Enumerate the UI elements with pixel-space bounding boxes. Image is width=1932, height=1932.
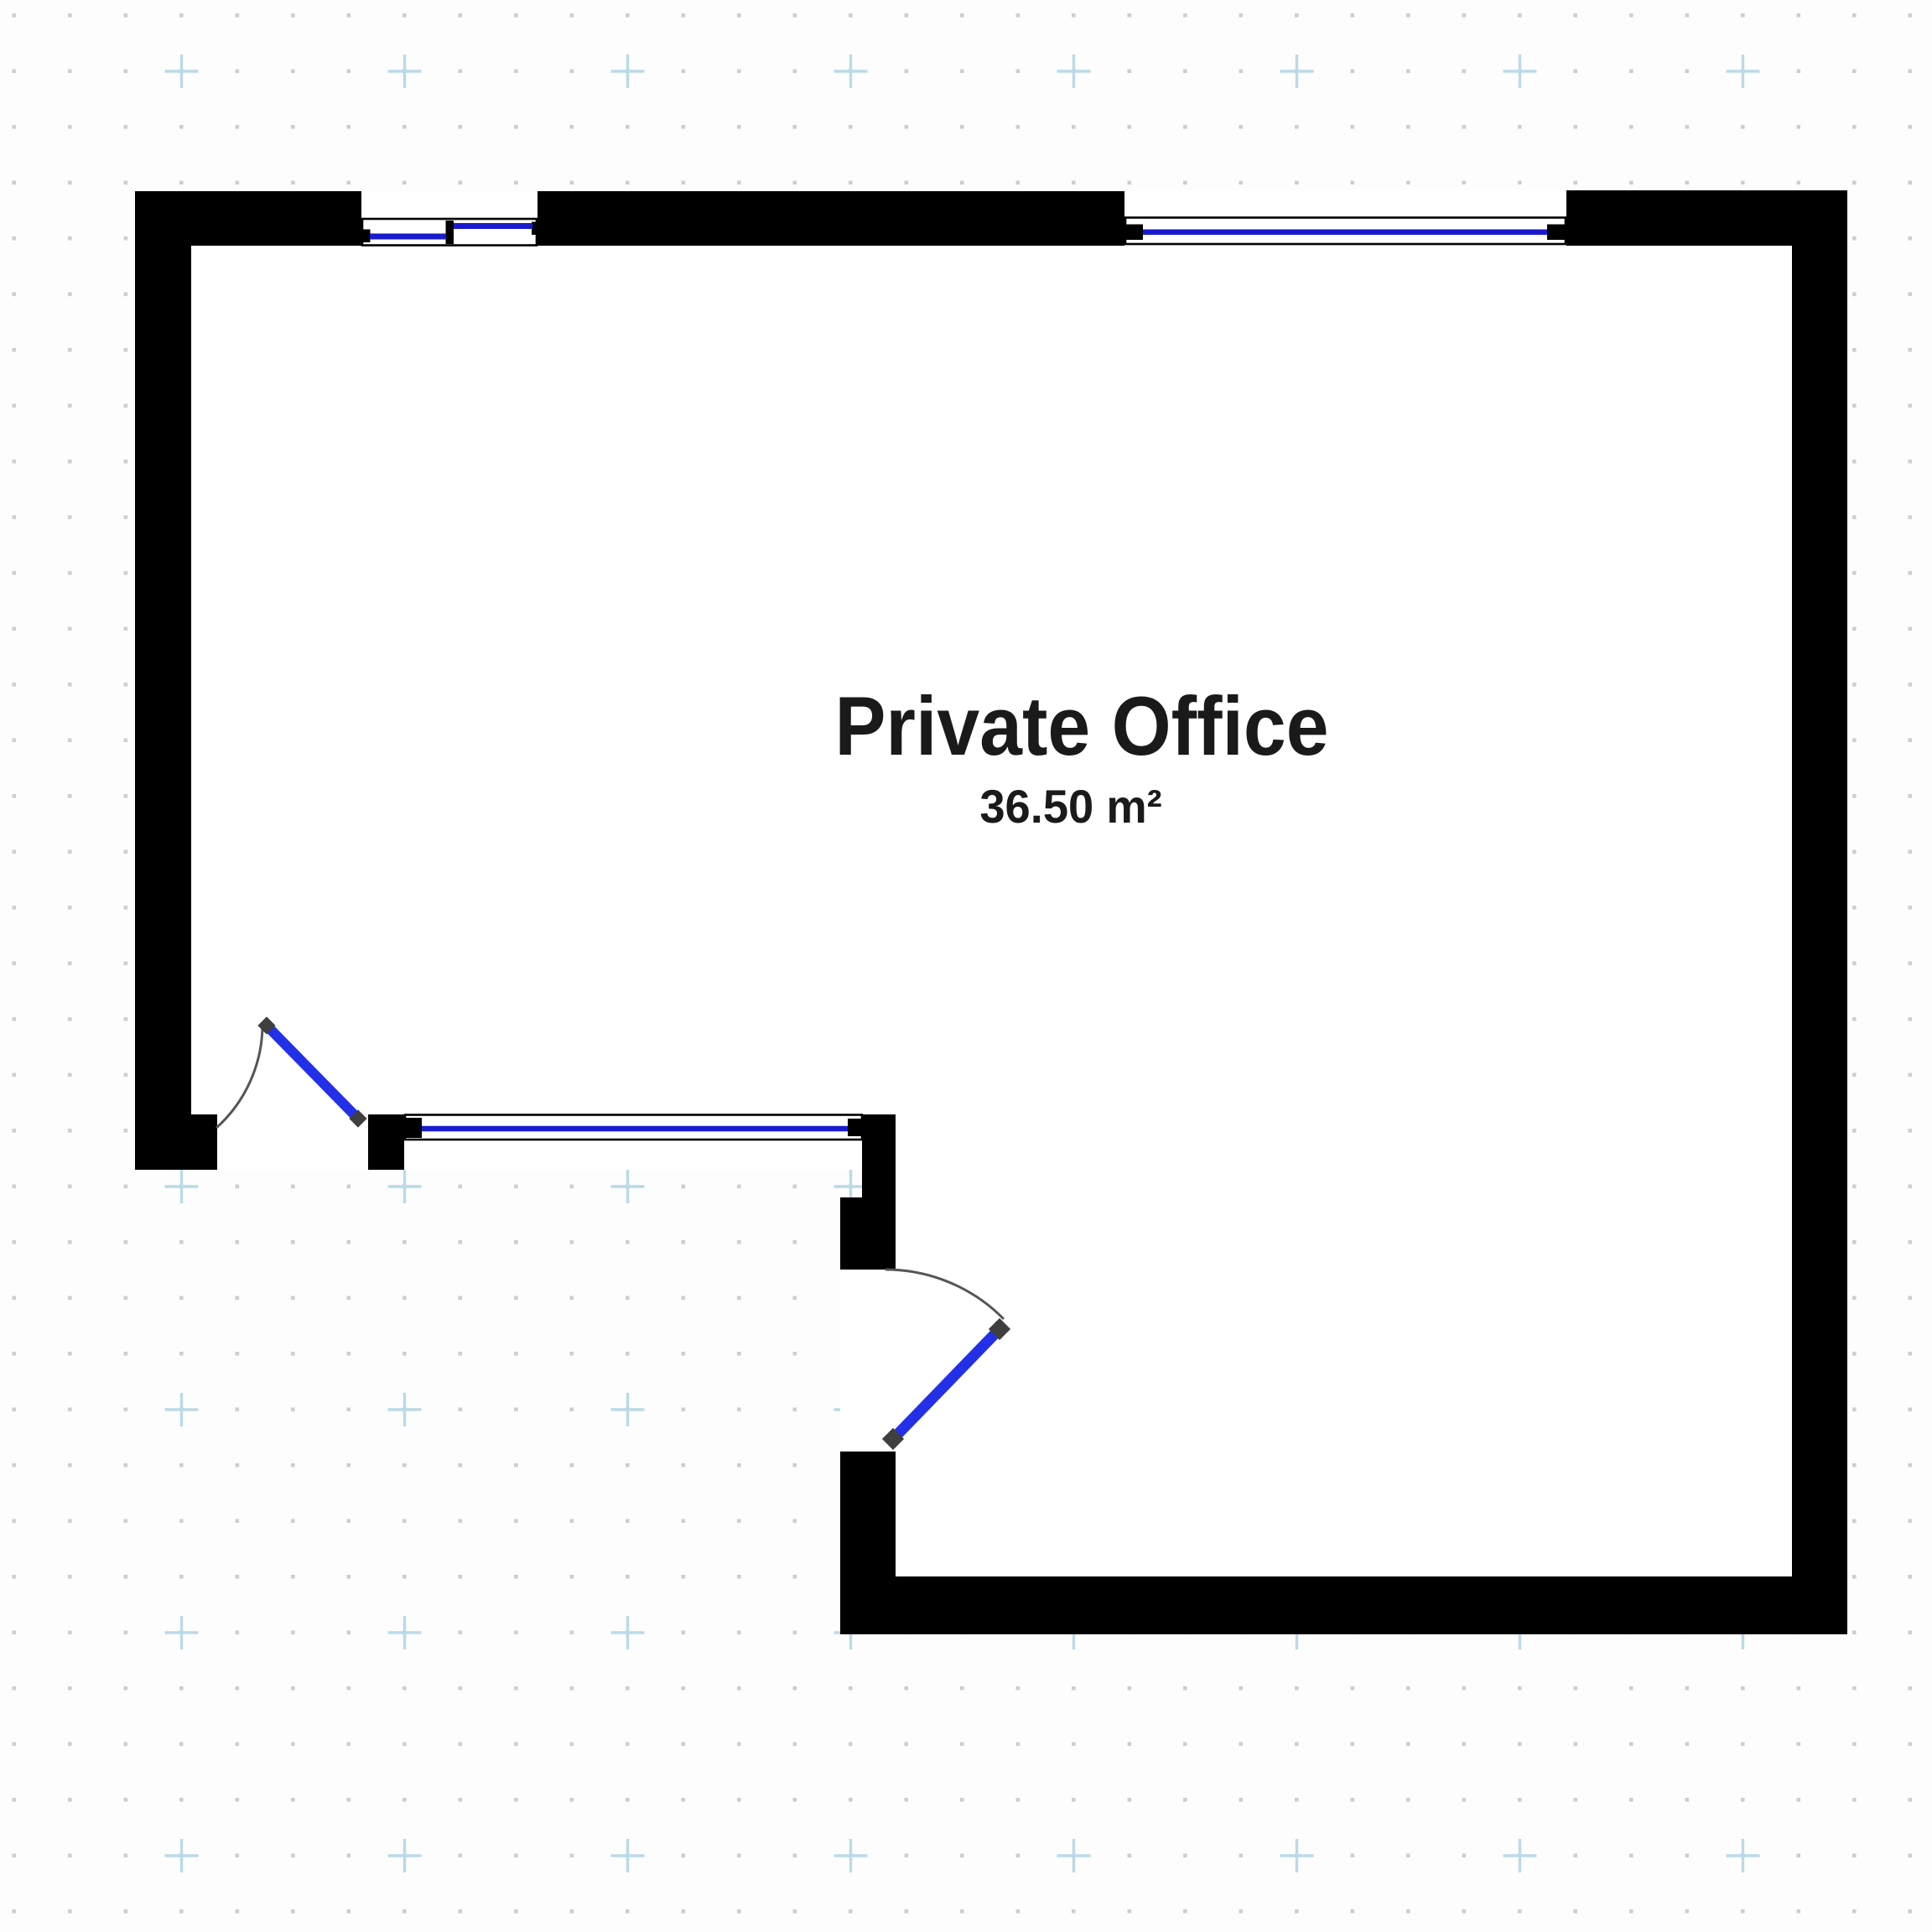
svg-text:Private Office: Private Office xyxy=(834,681,1328,773)
svg-text:36.50 m²: 36.50 m² xyxy=(979,780,1161,833)
